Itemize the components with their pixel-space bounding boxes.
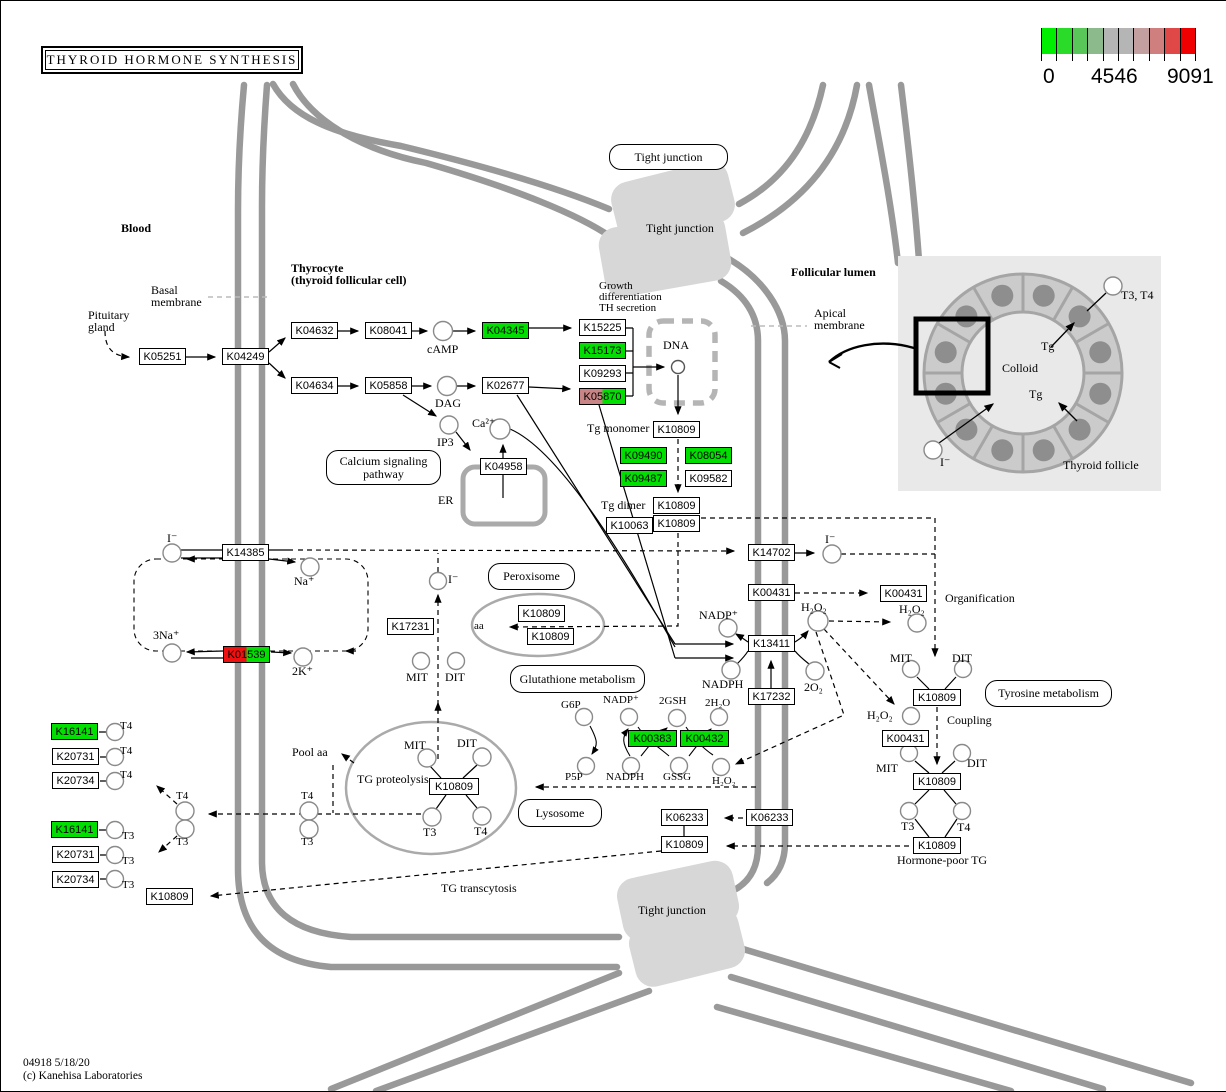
- metabolite-H2O2-coupling[interactable]: [903, 708, 920, 725]
- metabolite-iodide-recycled[interactable]: [430, 573, 447, 590]
- label-h-o-: H₂O₂: [712, 775, 736, 787]
- label-er: ER: [438, 494, 453, 506]
- legend-tick: [1180, 28, 1181, 61]
- label-aa: aa: [474, 620, 484, 632]
- metabolite-T3T4-follicle[interactable]: [1104, 277, 1122, 295]
- metabolite-DIT-dehal[interactable]: [448, 653, 465, 670]
- metabolite-G6P[interactable]: [576, 709, 593, 726]
- label-tg-dimer: Tg dimer: [601, 499, 645, 511]
- ko-box-K05251[interactable]: K05251: [139, 348, 186, 365]
- legend-color-segment: [1180, 28, 1195, 54]
- pathway-link-label: Tyrosine metabolism: [986, 687, 1111, 700]
- ko-box-K06233[interactable]: K06233: [661, 809, 708, 826]
- ko-box-K09582[interactable]: K09582: [685, 470, 732, 487]
- label-tg: Tg: [1029, 388, 1042, 400]
- label-th-secretion: TH secretion: [599, 302, 656, 314]
- label-t3: T3: [122, 879, 134, 891]
- pathway-link-tyrosine-metabolism[interactable]: Tyrosine metabolism: [985, 680, 1112, 707]
- legend-color-segment: [1041, 28, 1056, 54]
- label-i-: I⁻: [940, 456, 950, 468]
- peroxisome-outline: [472, 594, 604, 656]
- label-follicular-lumen: Follicular lumen: [791, 266, 876, 278]
- label-coupling: Coupling: [947, 714, 992, 726]
- label-blood: Blood: [121, 222, 151, 234]
- metabolite-MIT-coupling[interactable]: [901, 745, 918, 762]
- label-t4: T4: [120, 769, 132, 781]
- ko-box-K00383[interactable]: K00383: [628, 730, 677, 747]
- ko-box-K04632[interactable]: K04632: [291, 322, 338, 339]
- label-t3: T3: [176, 836, 188, 848]
- label-membrane: membrane: [151, 296, 202, 308]
- label-dit: DIT: [952, 652, 972, 664]
- metabolite-DAG[interactable]: [438, 377, 457, 396]
- metabolite-DIT-lysosome[interactable]: [473, 748, 491, 766]
- label-dna: DNA: [663, 339, 689, 351]
- legend-color-segment: [1087, 28, 1102, 54]
- legend-max: 9091: [1167, 65, 1214, 89]
- legend-color-segment: [1056, 28, 1071, 54]
- ko-box-K20734[interactable]: K20734: [52, 871, 99, 888]
- ko-box-K10809[interactable]: K10809: [653, 421, 700, 438]
- ko-box-K04345[interactable]: K04345: [482, 322, 529, 339]
- legend-mid: 4546: [1091, 65, 1138, 89]
- label-t4: T4: [301, 790, 313, 802]
- ko-box-K20731[interactable]: K20731: [52, 748, 99, 765]
- ko-box-K10809[interactable]: K10809: [429, 778, 479, 795]
- legend-color-segment: [1118, 28, 1133, 54]
- label-dit: DIT: [967, 757, 987, 769]
- label-hormone-poor-tg: Hormone-poor TG: [897, 854, 987, 866]
- legend-color-segment: [1149, 28, 1164, 54]
- label-na-: Na⁺: [294, 575, 314, 587]
- metabolite-H2O2-glut[interactable]: [713, 759, 730, 776]
- pathway-link-label: Lysosome: [519, 807, 601, 820]
- metabolite-MIT-dehal[interactable]: [413, 653, 430, 670]
- pathway-link-label: Peroxisome: [489, 570, 574, 583]
- label-mit: MIT: [876, 762, 898, 774]
- label-t3: T3: [301, 836, 313, 848]
- legend-min: 0: [1043, 65, 1055, 89]
- label-mit: MIT: [406, 671, 428, 683]
- metabolite-iodide-blood[interactable]: [163, 544, 181, 562]
- label-t3: T3: [122, 830, 134, 842]
- metabolite-T3-transport-2[interactable]: [107, 847, 124, 864]
- ko-box-K06233[interactable]: K06233: [746, 809, 793, 826]
- label-h-o-: H₂O₂: [867, 709, 893, 721]
- ko-box-K08054[interactable]: K08054: [685, 447, 732, 464]
- ko-box-K00431[interactable]: K00431: [880, 585, 927, 602]
- metabolite-iodide-lumen[interactable]: [823, 545, 841, 563]
- ko-box-K14702[interactable]: K14702: [748, 544, 795, 561]
- label-nadph: NADPH: [702, 678, 743, 690]
- label-organification: Organification: [945, 592, 1015, 604]
- ko-box-K20734[interactable]: K20734: [52, 772, 99, 789]
- pathway-link-label: pathway: [327, 468, 440, 481]
- ko-box-K04958[interactable]: K04958: [480, 458, 527, 475]
- metabolite-T3-lumen[interactable]: [901, 803, 918, 820]
- label-mit: MIT: [890, 652, 912, 664]
- ko-box-K10809[interactable]: K10809: [913, 689, 961, 706]
- metabolite-T4-blood[interactable]: [176, 802, 194, 820]
- ko-box-K15173[interactable]: K15173: [579, 342, 626, 359]
- label-tg-transcytosis: TG transcytosis: [441, 882, 517, 894]
- ko-box-K10063[interactable]: K10063: [606, 517, 653, 534]
- pathway-link-lysosome[interactable]: Lysosome: [518, 799, 602, 827]
- ko-box-K20731[interactable]: K20731: [52, 846, 99, 863]
- ko-box-K09490[interactable]: K09490: [620, 447, 667, 464]
- legend-tick: [1087, 28, 1088, 61]
- label-t4: T4: [176, 790, 188, 802]
- ko-box-K10809[interactable]: K10809: [527, 628, 574, 645]
- label-ca-: Ca²⁺: [472, 417, 495, 429]
- legend-tick: [1133, 28, 1134, 61]
- label-g6p: G6P: [561, 699, 581, 711]
- label-mit: MIT: [404, 739, 426, 751]
- ko-box-K17232[interactable]: K17232: [748, 688, 795, 705]
- ko-box-K08041[interactable]: K08041: [365, 322, 412, 339]
- label-i-: I⁻: [825, 533, 835, 545]
- ko-box-K04634[interactable]: K04634: [291, 377, 338, 394]
- ko-box-K10809[interactable]: K10809: [146, 888, 193, 905]
- metabolite-cAMP[interactable]: [434, 322, 453, 341]
- ko-box-K00431[interactable]: K00431: [882, 730, 929, 747]
- ko-box-K10809[interactable]: K10809: [913, 773, 961, 790]
- label-tg-proteolysis: TG proteolysis: [357, 773, 429, 785]
- label-ip3: IP3: [437, 436, 454, 448]
- ko-box-K13411[interactable]: K13411: [748, 635, 795, 652]
- ko-box-K14385[interactable]: K14385: [222, 544, 269, 561]
- metabolite-T4-lumen[interactable]: [954, 803, 971, 820]
- metabolite-NADP-glut[interactable]: [621, 709, 638, 726]
- pathway-link-peroxisome[interactable]: Peroxisome: [488, 563, 575, 590]
- label-2k-: 2K⁺: [292, 665, 313, 677]
- legend-color-segment: [1072, 28, 1087, 54]
- label-i-: I⁻: [167, 532, 177, 544]
- pathway-link-calcium-signaling-pathway[interactable]: Calcium signalingpathway: [326, 450, 441, 485]
- ko-box-K16141[interactable]: K16141: [51, 821, 98, 838]
- legend-tick: [1149, 28, 1150, 61]
- ko-box-K10809[interactable]: K10809: [661, 836, 708, 853]
- ko-box-K16141[interactable]: K16141: [51, 723, 98, 740]
- legend-color-segment: [1164, 28, 1179, 54]
- label-nadph: NADPH: [606, 771, 644, 783]
- label-i-: I⁻: [448, 573, 458, 585]
- label-2gsh: 2GSH: [659, 695, 687, 707]
- metabolite-2O2[interactable]: [806, 662, 824, 680]
- ko-box-K10809[interactable]: K10809: [653, 497, 700, 514]
- legend-tick: [1164, 28, 1165, 61]
- label-t3-t4: T3, T4: [1121, 289, 1153, 301]
- label-2o-: 2O₂: [804, 681, 823, 693]
- label-gssg: GSSG: [663, 771, 691, 783]
- ko-box-K10809[interactable]: K10809: [913, 837, 961, 854]
- pathway-link-glutathione-metabolism[interactable]: Glutathione metabolism: [510, 665, 645, 693]
- legend-tick: [1118, 28, 1119, 61]
- metabolite-DNA-site[interactable]: [672, 361, 685, 374]
- metabolite-2GSH[interactable]: [669, 710, 686, 727]
- ko-box-K10809[interactable]: K10809: [518, 605, 565, 622]
- ko-box-K09293[interactable]: K09293: [579, 365, 626, 382]
- legend-tick: [1072, 28, 1073, 61]
- legend-color-segment: [1103, 28, 1118, 54]
- kegg-pathway-map: THYROID HORMONE SYNTHESIS 0 4546 9091 04…: [0, 0, 1226, 1092]
- copyright: (c) Kanehisa Laboratories: [23, 1070, 142, 1082]
- ko-box-K01539[interactable]: K01539: [223, 646, 270, 663]
- label-t3: T3: [901, 820, 914, 832]
- label-camp: cAMP: [427, 343, 458, 355]
- pathway-link-tight-junction[interactable]: Tight junction: [609, 144, 728, 170]
- metabolite-H2O2-apical[interactable]: [808, 611, 828, 631]
- ko-box-K05870[interactable]: K05870: [579, 388, 626, 405]
- metabolite-2H2O[interactable]: [711, 709, 728, 726]
- label-thyroid-follicle: Thyroid follicle: [1063, 459, 1139, 471]
- pathway-link-label: Glutathione metabolism: [511, 673, 644, 686]
- label-t4: T4: [120, 720, 132, 732]
- metabolite-T4-lysosome[interactable]: [473, 807, 491, 825]
- label-t4: T4: [474, 825, 487, 837]
- metabolite-3Na+[interactable]: [163, 644, 181, 662]
- legend-tick: [1103, 28, 1104, 61]
- label-dit: DIT: [457, 737, 477, 749]
- ko-box-K17231[interactable]: K17231: [387, 618, 434, 635]
- ko-box-K15225[interactable]: K15225: [579, 319, 626, 336]
- label-tg-monomer: Tg monomer: [587, 422, 649, 434]
- metabolite-H2O2-organification[interactable]: [908, 614, 926, 632]
- metabolite-IP3[interactable]: [440, 416, 458, 434]
- label-t4: T4: [957, 821, 970, 833]
- label-t3: T3: [423, 826, 436, 838]
- label-p5p: P5P: [565, 771, 583, 783]
- label-colloid: Colloid: [1002, 362, 1038, 374]
- label-dit: DIT: [445, 671, 465, 683]
- label-t3: T3: [122, 855, 134, 867]
- ko-box-K05858[interactable]: K05858: [365, 377, 412, 394]
- label-nadp-: NADP⁺: [699, 609, 738, 621]
- pathway-link-label: Tight junction: [610, 151, 727, 164]
- legend-color-segment: [1133, 28, 1148, 54]
- pathway-title: THYROID HORMONE SYNTHESIS: [45, 50, 299, 70]
- er-organelle: [463, 467, 545, 524]
- label-h-o-: H₂O₂: [899, 603, 925, 615]
- metabolite-T3-lysosome[interactable]: [423, 808, 441, 826]
- label--thyroid-follicular-cell-: (thyroid follicular cell): [291, 274, 407, 286]
- ko-box-K09487[interactable]: K09487: [620, 470, 667, 487]
- label-nadp-: NADP⁺: [603, 694, 639, 706]
- label-2h-o: 2H₂O: [705, 697, 730, 709]
- label-t4: T4: [120, 745, 132, 757]
- map-number-date: 04918 5/18/20: [23, 1057, 90, 1069]
- metabolite-T3-transport-3[interactable]: [107, 871, 124, 888]
- legend-tick: [1056, 28, 1057, 61]
- label-tg: Tg: [1041, 340, 1054, 352]
- ko-box-K04249[interactable]: K04249: [222, 348, 269, 365]
- label-h-o-: H₂O₂: [801, 601, 827, 613]
- label-tight-junction: Tight junction: [638, 904, 706, 916]
- label-tight-junction: Tight junction: [646, 222, 714, 234]
- pathway-title-box: THYROID HORMONE SYNTHESIS: [41, 46, 303, 74]
- ko-box-K02677[interactable]: K02677: [482, 377, 529, 394]
- solid-arrows: [99, 328, 957, 879]
- label-membrane: membrane: [814, 319, 865, 331]
- ko-box-K10809[interactable]: K10809: [653, 515, 700, 532]
- ko-box-K00431[interactable]: K00431: [748, 584, 795, 601]
- metabolite-T3-transport-1[interactable]: [107, 822, 124, 839]
- metabolite-T4-cell[interactable]: [300, 802, 318, 820]
- pathway-link-label: Calcium signaling: [327, 455, 440, 468]
- legend-tick: [1041, 28, 1042, 61]
- legend-tick: [1195, 28, 1196, 61]
- ko-box-K00432[interactable]: K00432: [680, 730, 729, 747]
- label-pool-aa: Pool aa: [292, 746, 328, 758]
- label-dag: DAG: [435, 397, 461, 409]
- label-3na-: 3Na⁺: [153, 629, 179, 641]
- label-gland: gland: [88, 321, 115, 333]
